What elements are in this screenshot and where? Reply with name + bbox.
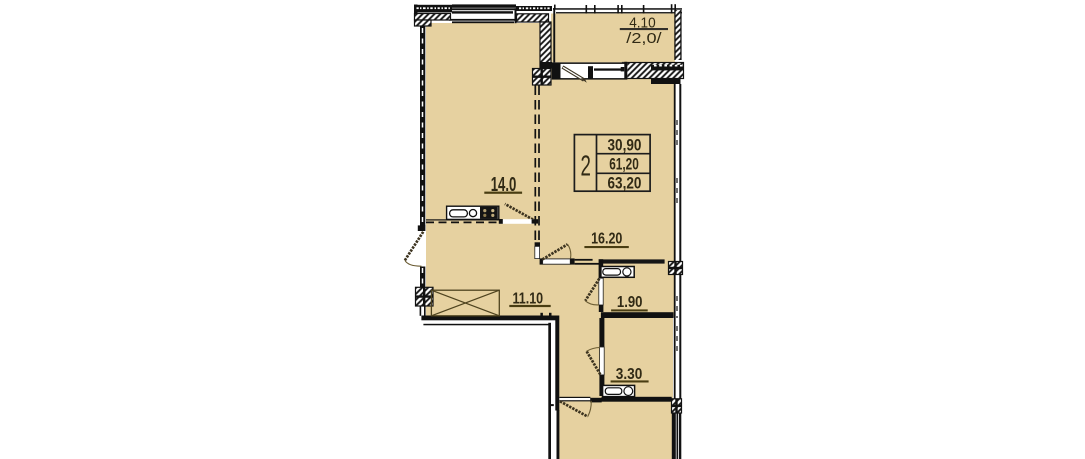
svg-text:30,90: 30,90	[608, 135, 642, 154]
svg-text:1.90: 1.90	[617, 294, 643, 311]
svg-text:2: 2	[581, 151, 591, 183]
svg-text:/2,0/: /2,0/	[626, 30, 662, 47]
svg-text:3.30: 3.30	[616, 366, 643, 383]
svg-text:16.20: 16.20	[591, 231, 622, 248]
svg-text:63,20: 63,20	[608, 174, 642, 193]
svg-text:61,20: 61,20	[609, 154, 639, 173]
